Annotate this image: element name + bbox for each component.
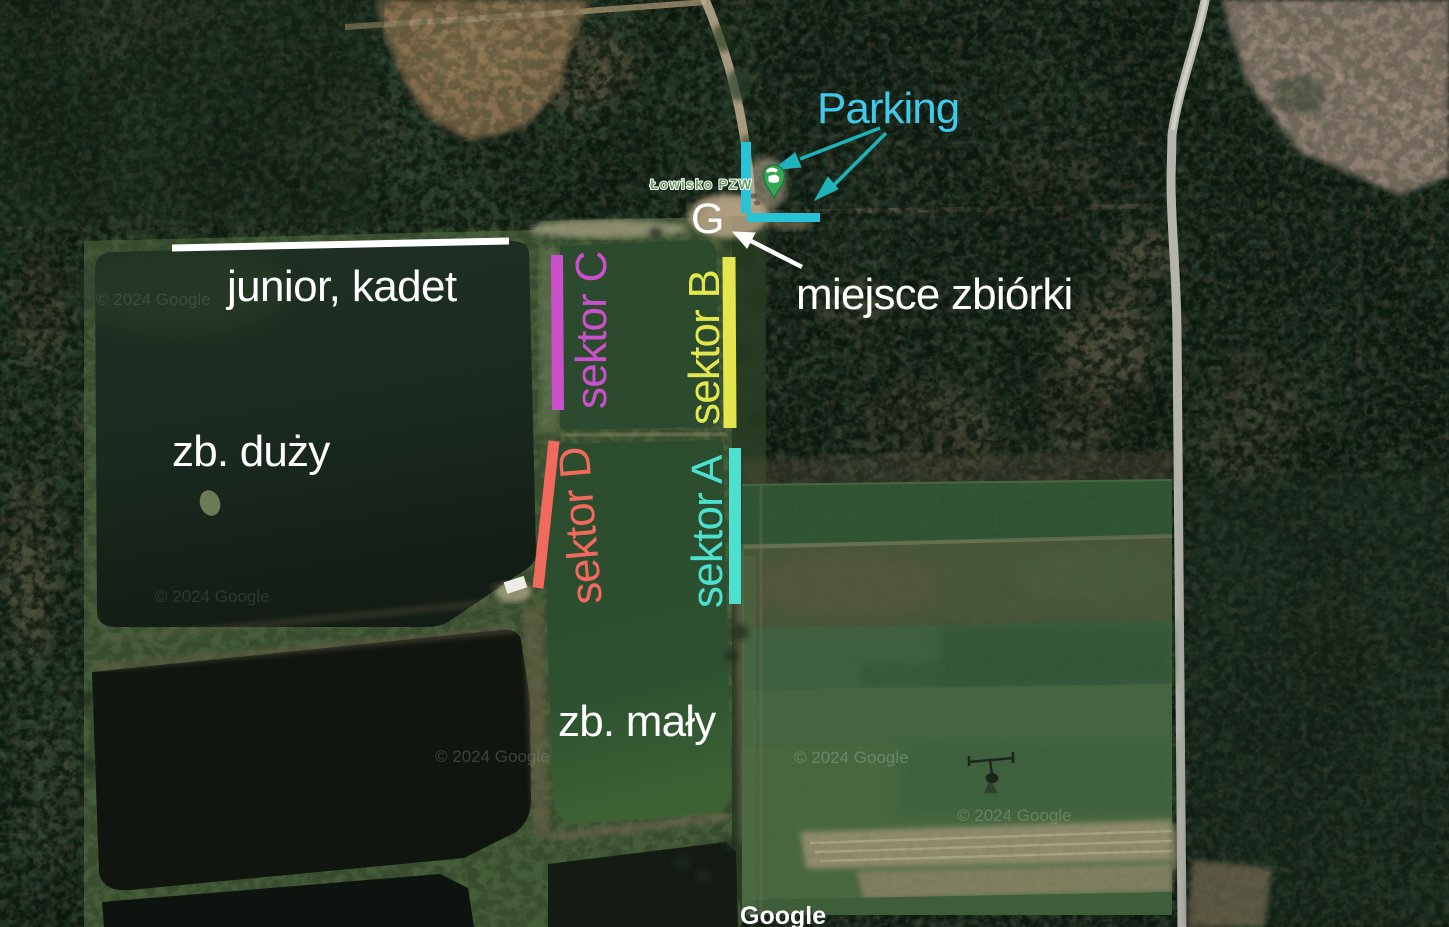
svg-text:© 2024 Google: © 2024 Google: [957, 806, 1072, 825]
svg-text:zb. duży: zb. duży: [172, 427, 330, 476]
svg-text:© 2024 Google: © 2024 Google: [794, 748, 909, 767]
svg-text:zb. mały: zb. mały: [558, 697, 716, 746]
svg-text:© 2024 Google: © 2024 Google: [155, 587, 270, 606]
svg-text:sektor A: sektor A: [683, 454, 732, 608]
svg-text:G: G: [691, 195, 724, 243]
svg-text:Parking: Parking: [817, 84, 959, 133]
svg-text:sektor C: sektor C: [567, 252, 616, 409]
svg-text:miejsce zbiórki: miejsce zbiórki: [796, 270, 1073, 319]
svg-text:© 2024 Google: © 2024 Google: [435, 747, 550, 766]
svg-text:junior, kadet: junior, kadet: [225, 262, 457, 311]
svg-text:sektor B: sektor B: [680, 270, 729, 425]
svg-text:© 2024 Google: © 2024 Google: [96, 290, 211, 309]
svg-text:Łowisko PZW: Łowisko PZW: [650, 177, 753, 192]
svg-text:Google: Google: [740, 902, 826, 927]
